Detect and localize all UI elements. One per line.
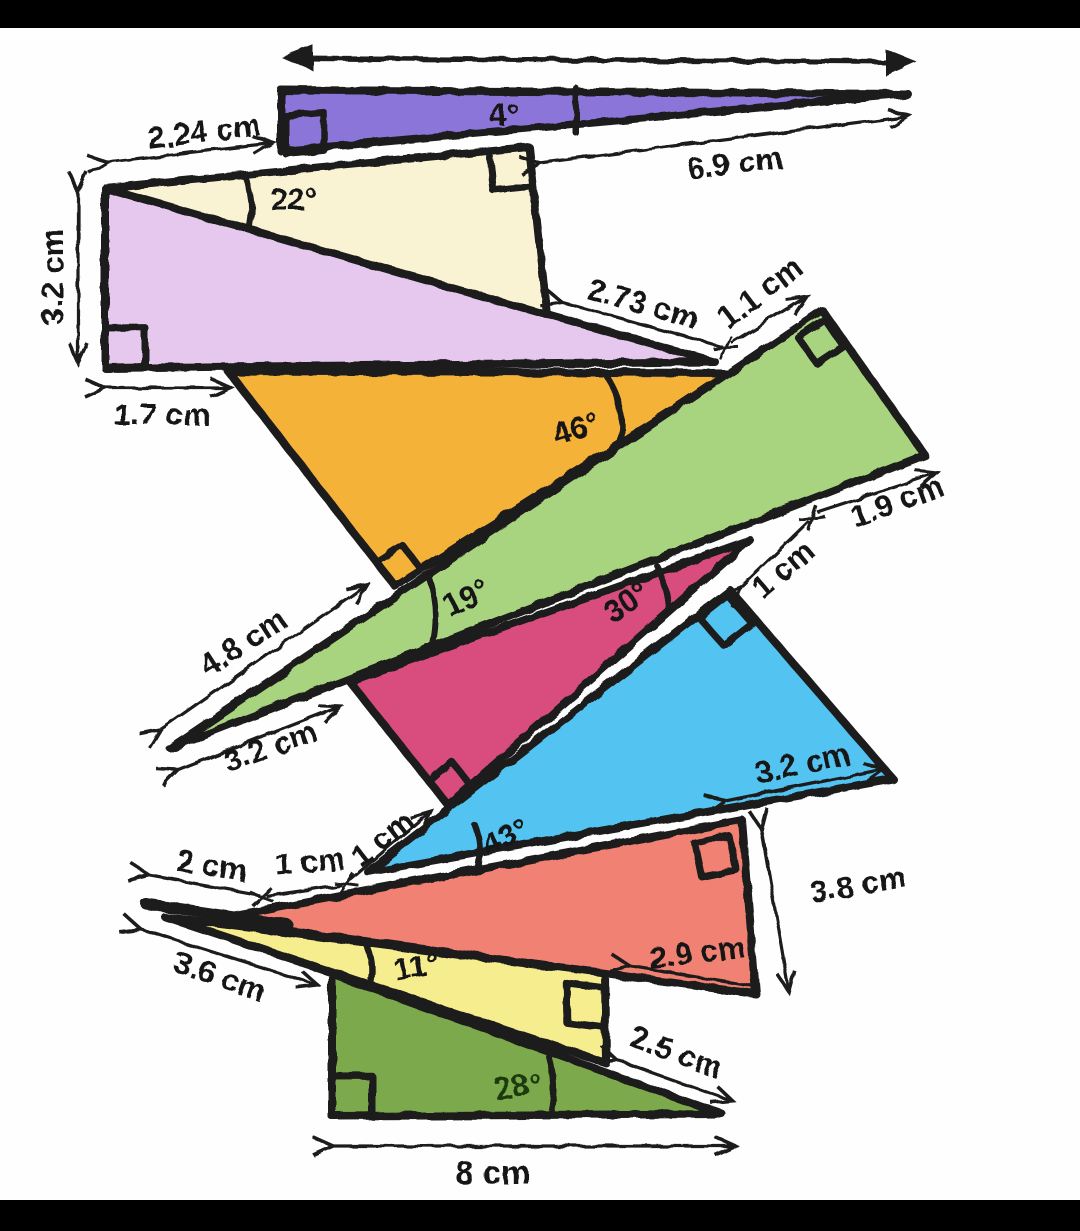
svg-text:28°: 28°	[492, 1066, 543, 1107]
svg-text:4°: 4°	[489, 97, 519, 132]
svg-text:8 cm: 8 cm	[455, 1154, 530, 1191]
svg-text:1 cm: 1 cm	[274, 842, 347, 882]
svg-text:22°: 22°	[271, 182, 318, 217]
svg-text:1.7 cm: 1.7 cm	[114, 397, 211, 432]
svg-text:3.2 cm: 3.2 cm	[35, 229, 70, 326]
